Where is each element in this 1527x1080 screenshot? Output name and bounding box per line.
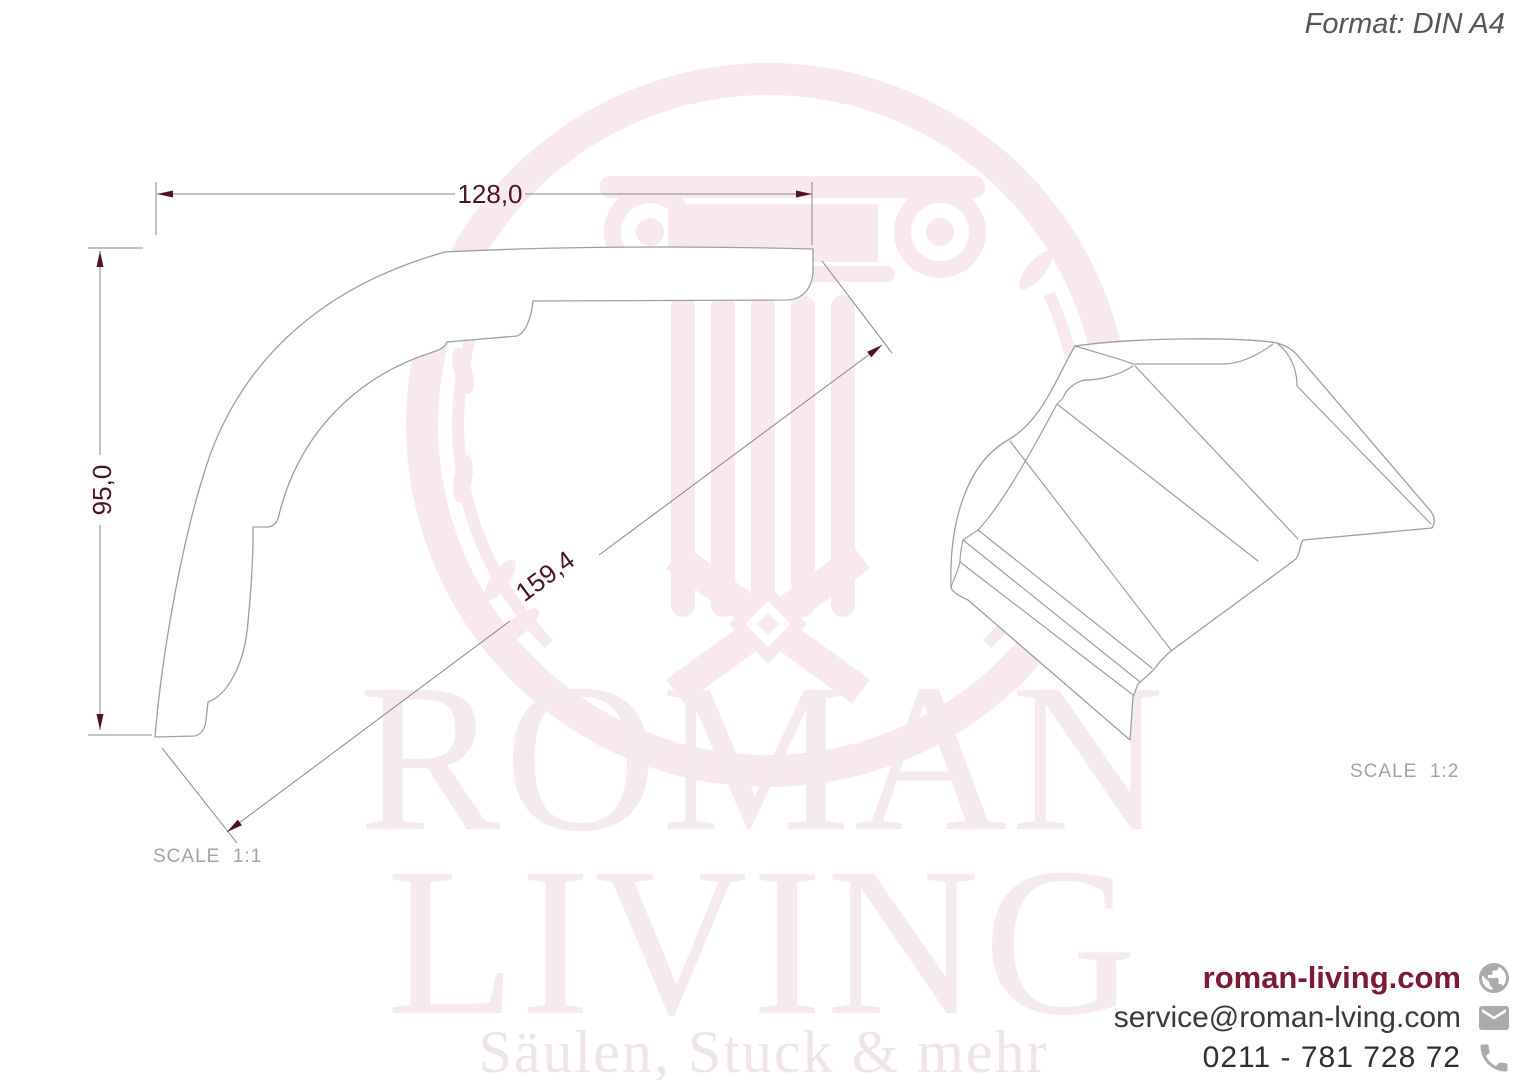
phone-number[interactable]: 0211 - 781 728 72 xyxy=(1203,1041,1461,1075)
dim-width-value: 128,0 xyxy=(457,179,522,209)
dimension-height: 95,0 xyxy=(87,248,152,735)
contact-row-phone: 0211 - 781 728 72 xyxy=(1114,1040,1512,1076)
contact-row-website: roman-living.com xyxy=(1114,960,1512,996)
format-label: Format: DIN A4 xyxy=(1305,8,1505,41)
dim-diagonal-value: 159,4 xyxy=(510,545,580,608)
email-link[interactable]: service@roman-lving.com xyxy=(1114,1001,1461,1035)
contact-row-email: service@roman-lving.com xyxy=(1114,1000,1512,1036)
molding-view-3d xyxy=(951,339,1434,740)
website-link[interactable]: roman-living.com xyxy=(1203,960,1461,996)
phone-icon[interactable] xyxy=(1476,1040,1512,1076)
dimension-diagonal: 159,4 xyxy=(162,261,892,843)
technical-drawing: 128,0 95,0 159,4 xyxy=(0,0,1527,1080)
dim-height-value: 95,0 xyxy=(87,465,117,516)
envelope-icon[interactable] xyxy=(1476,1000,1512,1036)
scale-label-1-2: SCALE 1:2 xyxy=(1350,761,1459,783)
dimension-width: 128,0 xyxy=(156,179,812,245)
scale-label-1-1: SCALE 1:1 xyxy=(153,846,262,868)
molding-profile-2d xyxy=(155,247,813,737)
globe-icon[interactable] xyxy=(1476,960,1512,996)
contact-block: roman-living.com service@roman-lving.com… xyxy=(1114,960,1512,1076)
drawing-sheet: ROMAN LIVING Säulen, Stuck & mehr xyxy=(0,0,1527,1080)
